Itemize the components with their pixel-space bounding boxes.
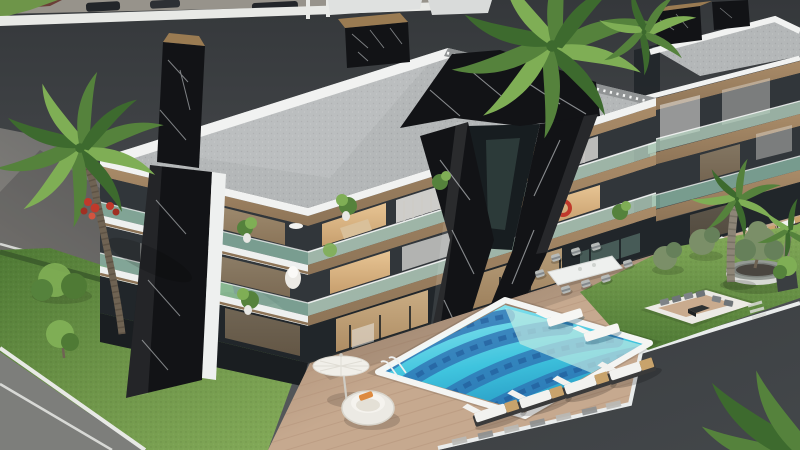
table-decor [592,263,596,267]
architectural-render-image [0,0,800,450]
balcony-table [289,223,303,229]
background-rooftop [428,0,492,15]
small-tree-trunk [63,348,64,358]
villa-render-canvas [0,0,800,450]
neighbour-marble-cube [712,0,750,30]
umbrella-finial [339,353,343,357]
egg-chair-highlight [288,266,298,278]
parked-car [86,1,120,12]
rooftop-marble-cube [338,13,410,68]
palm-trunk [731,206,735,282]
daybed-seat [356,399,380,412]
table-decor [578,267,582,271]
railing-post [306,0,310,19]
potted-plant-leaf [773,265,787,279]
